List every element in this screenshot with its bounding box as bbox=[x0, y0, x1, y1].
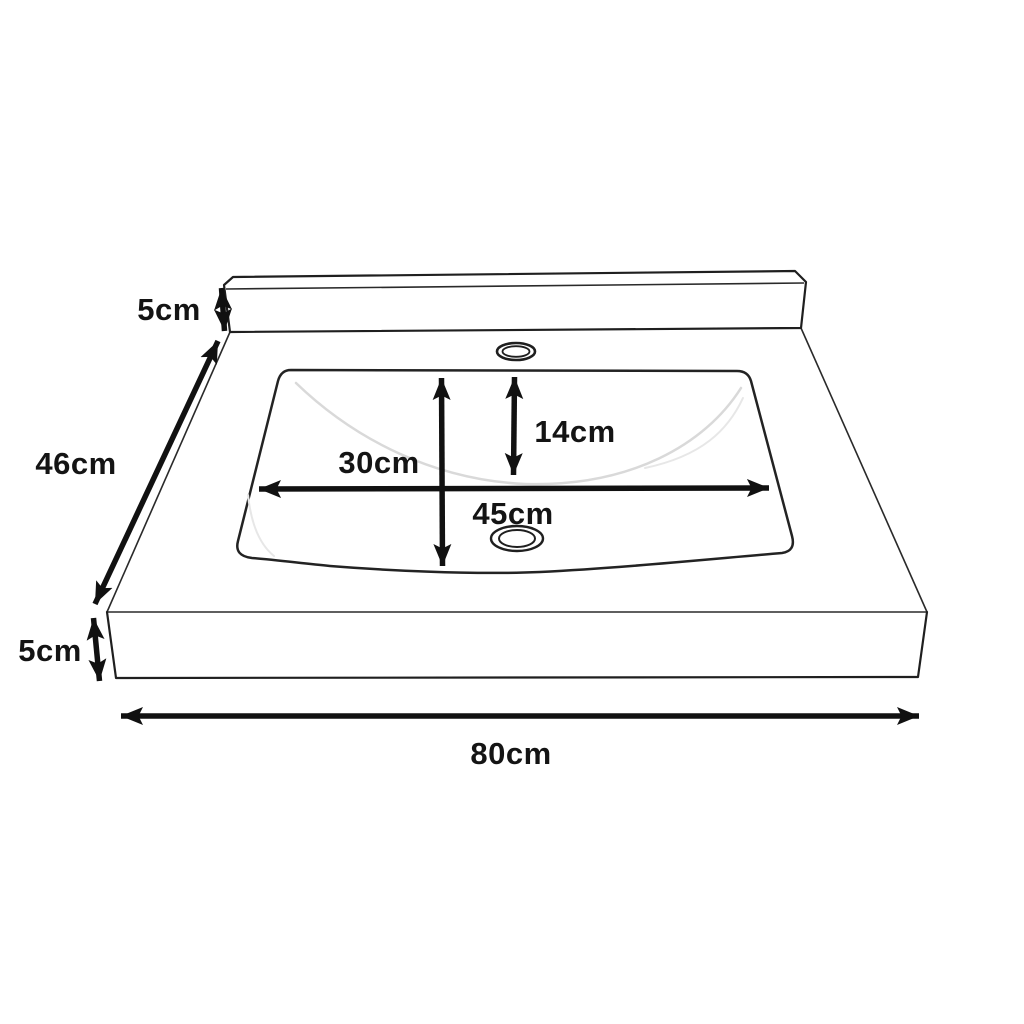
overall-width-label: 80cm bbox=[470, 736, 551, 771]
basin-inner-height-arrow bbox=[514, 377, 515, 475]
sink-diagram-drawing: 5cm 46cm 5cm 80cm 30cm 14cm 45cm bbox=[0, 0, 1024, 1024]
faucet-hole-inner-ring bbox=[503, 346, 530, 357]
basin-width-arrow bbox=[259, 488, 769, 489]
basin-depth-label: 30cm bbox=[338, 445, 419, 480]
overall-depth-label: 46cm bbox=[35, 446, 116, 481]
counter-thickness-label: 5cm bbox=[18, 633, 82, 668]
basin-depth-arrow bbox=[442, 378, 443, 566]
drain-hole-inner-ring bbox=[499, 530, 535, 547]
counter-thickness-arrow bbox=[94, 618, 100, 681]
backsplash-outline bbox=[224, 271, 806, 332]
basin-width-label: 45cm bbox=[472, 496, 553, 531]
backsplash-height-label: 5cm bbox=[137, 292, 201, 327]
backsplash-height-arrow bbox=[222, 288, 225, 331]
basin-inner-height-label: 14cm bbox=[534, 414, 615, 449]
backsplash-top-front-edge bbox=[226, 283, 804, 289]
counter-front-face bbox=[107, 612, 927, 678]
counter-right-edge bbox=[801, 328, 927, 612]
sink-dimensions-diagram: 5cm 46cm 5cm 80cm 30cm 14cm 45cm bbox=[0, 0, 1024, 1024]
counter-left-edge bbox=[107, 332, 230, 612]
